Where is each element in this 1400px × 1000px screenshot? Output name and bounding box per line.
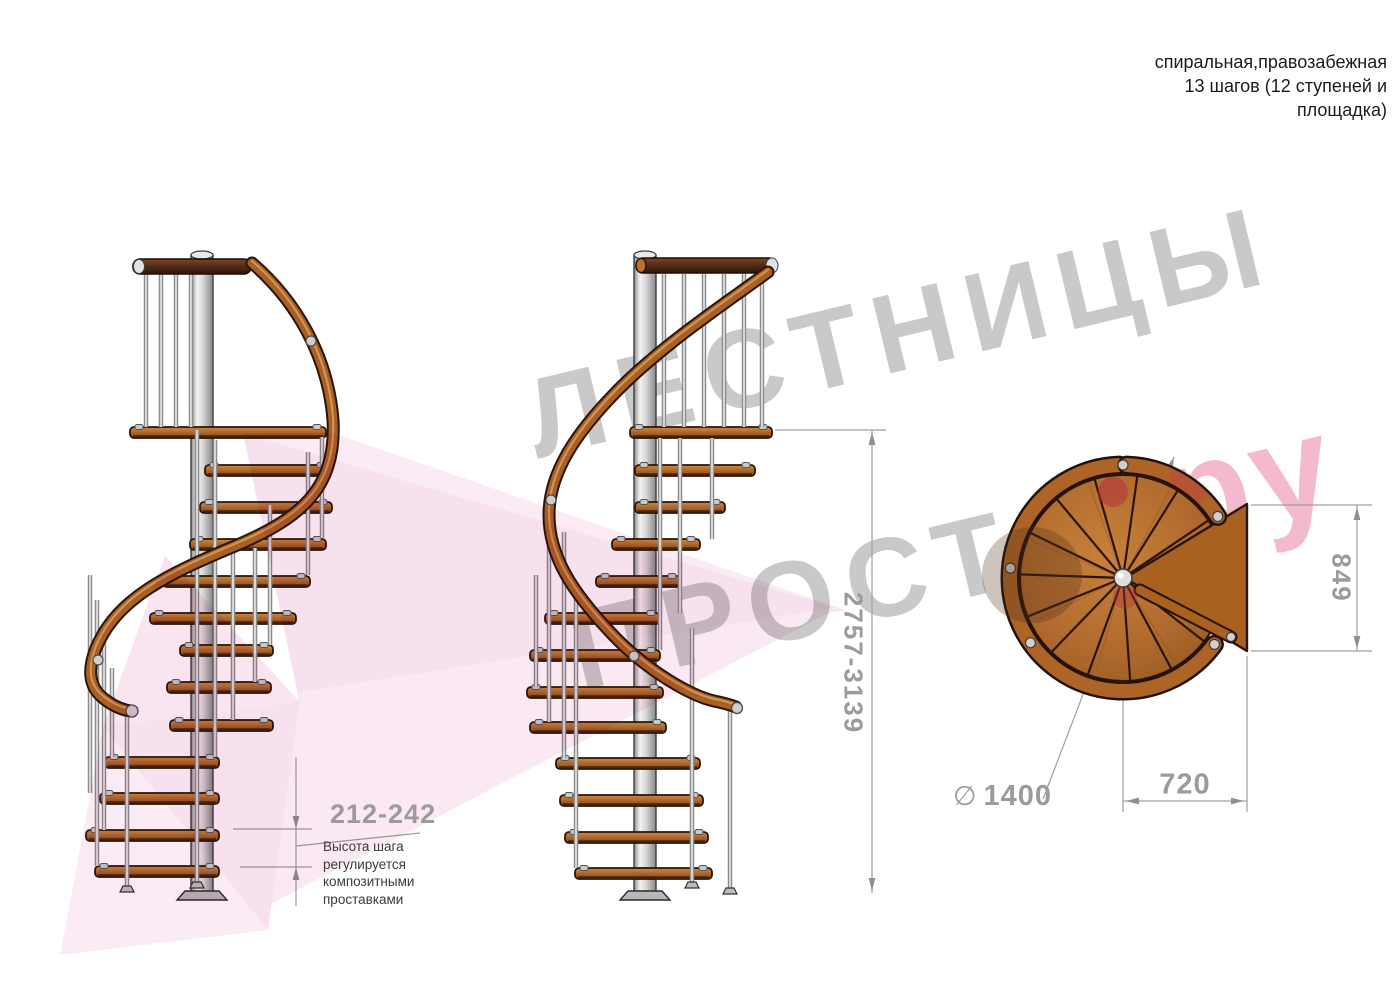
title-note-line2: 13 шагов (12 ступеней и (1155, 74, 1387, 98)
drawing-page: ЛЕСТНИЦЫ ПРОСТО .ру спиральная,правозабе… (0, 0, 1400, 1000)
diameter-symbol: ∅ (953, 781, 978, 812)
diameter-dimension: ∅ 1400 (953, 780, 1052, 813)
center-pole-top (1114, 569, 1132, 587)
step-height-dimension: 212-242 (330, 799, 436, 830)
diameter-value: 1400 (984, 780, 1053, 813)
step-height-note: Высота шага регулируется композитными пр… (323, 838, 414, 908)
title-note-line1: спиральная,правозабежная (1155, 50, 1387, 74)
total-height-dimension: 2757-3139 (838, 592, 869, 734)
platform-depth-dimension: 849 (1326, 553, 1357, 602)
step-height-note-line2: регулируется (323, 856, 414, 874)
step-height-note-line3: композитными (323, 873, 414, 891)
step-height-note-line1: Высота шага (323, 838, 414, 856)
staircase-plan-view (0, 0, 1400, 1000)
title-note-line3: площадка) (1155, 98, 1387, 122)
plan-view (982, 460, 1247, 691)
step-height-note-line4: проставками (323, 891, 414, 909)
title-note: спиральная,правозабежная 13 шагов (12 ст… (1155, 50, 1387, 122)
platform-width-dimension: 720 (1159, 769, 1210, 802)
